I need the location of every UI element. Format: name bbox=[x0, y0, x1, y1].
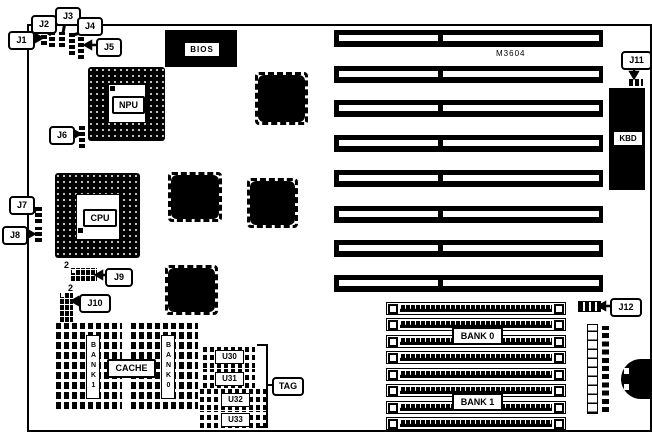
isa-slot-2 bbox=[334, 66, 603, 83]
cpu-socket: CPU bbox=[55, 173, 140, 258]
isa-slot-6 bbox=[334, 206, 603, 223]
isa-slot-4 bbox=[334, 135, 603, 152]
cache-bank1-label: BANK1 bbox=[86, 335, 100, 399]
board-model-label: M3604 bbox=[496, 49, 525, 58]
tag-callout: TAG bbox=[272, 377, 304, 396]
bios-chip: BIOS bbox=[165, 30, 237, 67]
u33-label: U33 bbox=[221, 413, 250, 427]
simm-socket-1 bbox=[386, 302, 566, 315]
j5-jumper bbox=[78, 32, 84, 59]
j8-callout: J8 bbox=[2, 226, 28, 245]
simm-socket-8 bbox=[386, 417, 566, 430]
cpu-pin1-marker bbox=[78, 228, 83, 233]
j12-callout: J12 bbox=[610, 298, 642, 317]
isa-slot-5 bbox=[334, 170, 603, 187]
npu-pin1-marker bbox=[110, 86, 115, 91]
j4-jumper bbox=[69, 32, 75, 55]
u31-label: U31 bbox=[215, 372, 244, 386]
j2-callout: J2 bbox=[31, 15, 57, 34]
motherboard-diagram: M3604 BIOS NPU CPU 2 2 BANK1 BANK0 CAC bbox=[0, 0, 652, 438]
j7-callout: J7 bbox=[9, 196, 35, 215]
j7-jumper bbox=[35, 205, 42, 223]
isa-slot-1 bbox=[334, 30, 603, 47]
power-connector bbox=[587, 324, 610, 414]
j11-callout: J11 bbox=[621, 51, 652, 70]
j9-pin2-marker: 2 bbox=[64, 261, 69, 270]
j11-jumper bbox=[628, 78, 644, 87]
tag-bracket-top-tick bbox=[257, 344, 268, 346]
j5-callout: J5 bbox=[96, 38, 122, 57]
cache-bank0-label: BANK0 bbox=[161, 335, 175, 399]
isa-slot-8 bbox=[334, 275, 603, 292]
cache-label: CACHE bbox=[107, 359, 156, 378]
npu-label: NPU bbox=[112, 96, 145, 114]
tag-chip-u31: U31 bbox=[203, 369, 255, 388]
j9-callout: J9 bbox=[105, 268, 133, 287]
u30-label: U30 bbox=[215, 350, 244, 364]
j1-callout: J1 bbox=[8, 31, 35, 50]
qfp-chip-4 bbox=[165, 265, 218, 315]
j10-pin2-marker: 2 bbox=[68, 284, 73, 293]
memory-bank0-label: BANK 0 bbox=[452, 327, 503, 345]
tag-chip-u30: U30 bbox=[203, 346, 255, 368]
isa-slot-3 bbox=[334, 100, 603, 117]
j8-jumper bbox=[35, 227, 42, 242]
memory-bank1-label: BANK 1 bbox=[452, 393, 503, 411]
kbd-controller: KBD bbox=[609, 88, 645, 190]
isa-slot-7 bbox=[334, 240, 603, 257]
j10-callout: J10 bbox=[79, 294, 111, 313]
qfp-chip-2 bbox=[168, 172, 222, 222]
j3-jumper bbox=[59, 32, 65, 47]
j12-jumper bbox=[578, 301, 601, 312]
j9-jumper bbox=[71, 268, 97, 281]
j2-jumper bbox=[49, 32, 55, 47]
simm-socket-4 bbox=[386, 351, 566, 364]
j10-jumper bbox=[60, 292, 73, 322]
qfp-chip-3 bbox=[247, 178, 298, 228]
simm-socket-5 bbox=[386, 368, 566, 381]
j6-jumper bbox=[79, 125, 85, 148]
j6-callout: J6 bbox=[49, 126, 75, 145]
cpu-label: CPU bbox=[83, 209, 117, 227]
tag-bracket-bottom-tick bbox=[257, 426, 268, 428]
qfp-chip-1 bbox=[255, 72, 308, 125]
j4-callout: J4 bbox=[77, 17, 103, 36]
u32-label: U32 bbox=[221, 393, 250, 407]
kbd-label: KBD bbox=[613, 131, 643, 146]
npu-socket: NPU bbox=[88, 67, 165, 141]
bios-label: BIOS bbox=[184, 42, 220, 57]
tag-bracket-line bbox=[266, 344, 268, 428]
tag-chip-u32: U32 bbox=[200, 389, 269, 410]
